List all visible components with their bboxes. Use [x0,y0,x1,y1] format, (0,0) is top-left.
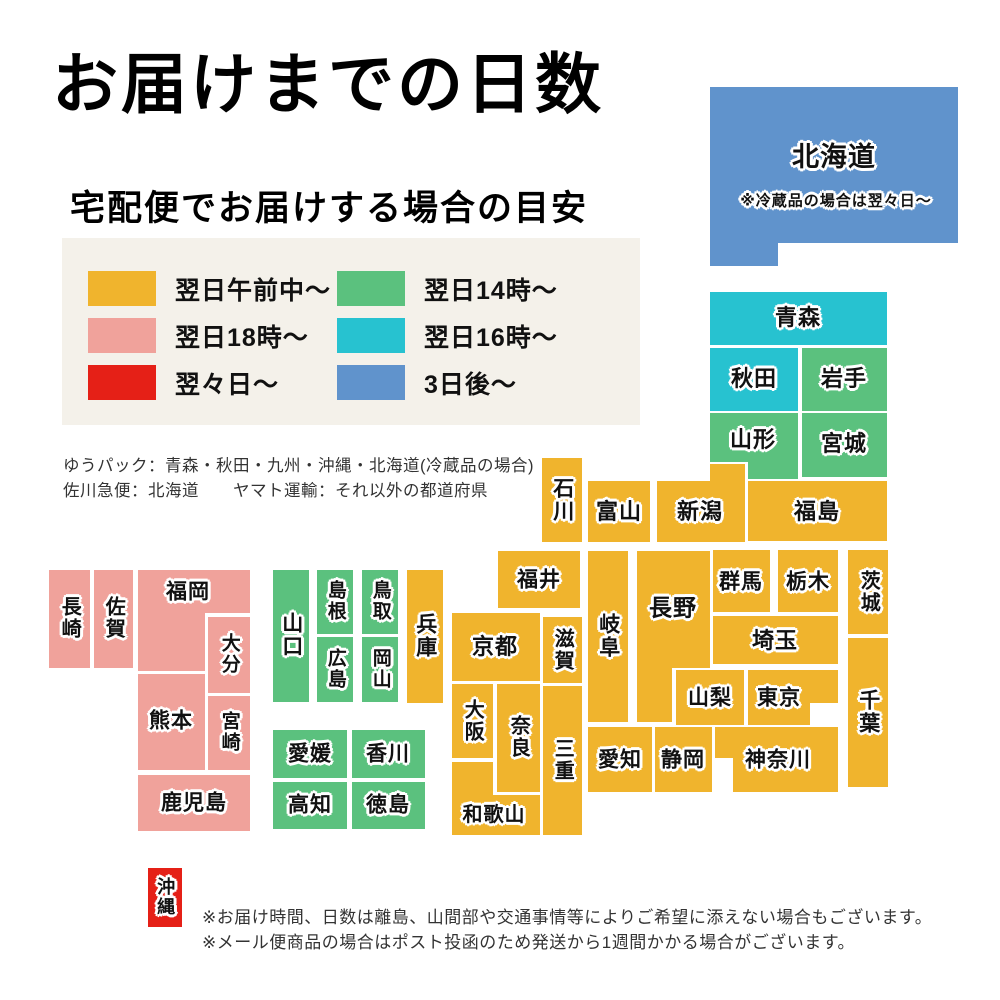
prefecture-tile [710,87,778,266]
prefecture-label: 秋田 [731,368,777,390]
prefecture-label: 宮崎 [219,711,238,753]
prefecture-label: 和歌山 [463,805,526,825]
prefecture-label: 北海道 [792,144,876,172]
prefecture-label: 愛知 [598,749,642,770]
prefecture-label: 熊本 [149,710,193,731]
prefecture-label: 鳥取 [370,580,389,622]
prefecture-label: 岐阜 [597,613,618,659]
prefecture-label: 栃木 [786,571,830,592]
prefecture-label: 福島 [794,501,840,523]
prefecture-label: 東京 [757,687,801,708]
prefecture-label: 滋賀 [552,628,572,672]
hokkaido-note: ※冷蔵品の場合は翌々日〜 [740,193,932,208]
footnote-line2: ※メール便商品の場合はポスト投函のため発送から1週間かかる場合がございます。 [202,928,855,953]
prefecture-label: 山梨 [688,687,732,708]
prefecture-label: 新潟 [677,501,723,523]
prefecture-label: 佐賀 [103,596,123,640]
japan-map: 北海道※冷蔵品の場合は翌々日〜青森秋田岩手山形宮城石川富山新潟福島福井岐阜長野群… [0,0,1000,1000]
prefecture-label: 長野 [649,596,697,619]
prefecture-label: 山形 [730,429,776,451]
prefecture-label: 茨城 [858,570,878,614]
delivery-days-infographic: お届けまでの日数 宅配便でお届けする場合の目安 翌日午前中〜翌日18時〜翌々日〜… [0,0,1000,1000]
prefecture-label: 福岡 [166,581,210,602]
prefecture-label: 埼玉 [752,630,798,652]
prefecture-label: 大分 [219,633,238,675]
prefecture-label: 広島 [325,648,344,690]
prefecture-label: 長崎 [59,596,79,640]
prefecture-label: 香川 [366,743,410,764]
prefecture-label: 徳島 [366,794,410,815]
prefecture-label: 大阪 [462,699,482,743]
prefecture-label: 愛媛 [288,743,332,764]
prefecture-label: 静岡 [661,749,705,770]
prefecture-tile [710,464,745,484]
prefecture-tile [637,551,672,722]
prefecture-label: 青森 [775,307,821,329]
prefecture-label: 京都 [472,636,518,658]
prefecture-label: 岡山 [370,648,389,690]
prefecture-label: 岩手 [821,368,867,390]
prefecture-label: 高知 [288,794,332,815]
prefecture-label: 三重 [552,738,572,782]
prefecture-label: 宮城 [821,433,867,455]
prefecture-label: 石川 [551,477,572,523]
prefecture-label: 沖縄 [156,877,174,917]
footnote-line1: ※お届け時間、日数は離島、山間部や交通事情等によりご希望に添えない場合もございま… [202,903,932,928]
prefecture-label: 福井 [517,569,561,590]
prefecture-label: 群馬 [719,571,763,592]
prefecture-label: 富山 [596,501,642,523]
prefecture-label: 山口 [280,612,301,658]
prefecture-label: 奈良 [508,715,528,759]
prefecture-label: 神奈川 [745,749,811,770]
prefecture-label: 千葉 [857,689,878,735]
prefecture-label: 兵庫 [414,613,435,659]
prefecture-label: 島根 [325,580,344,622]
prefecture-label: 鹿児島 [161,792,227,813]
